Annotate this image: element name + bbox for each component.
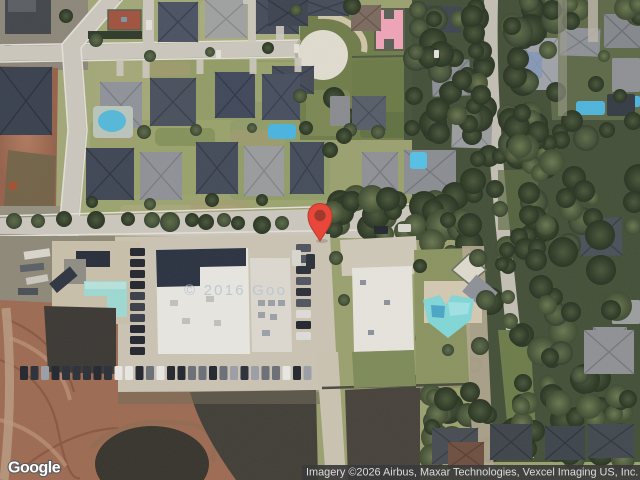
svg-text:Google: Google <box>8 460 61 477</box>
svg-text:Imagery ©2026 Airbus, Maxar Te: Imagery ©2026 Airbus, Maxar Technologies… <box>306 467 638 479</box>
